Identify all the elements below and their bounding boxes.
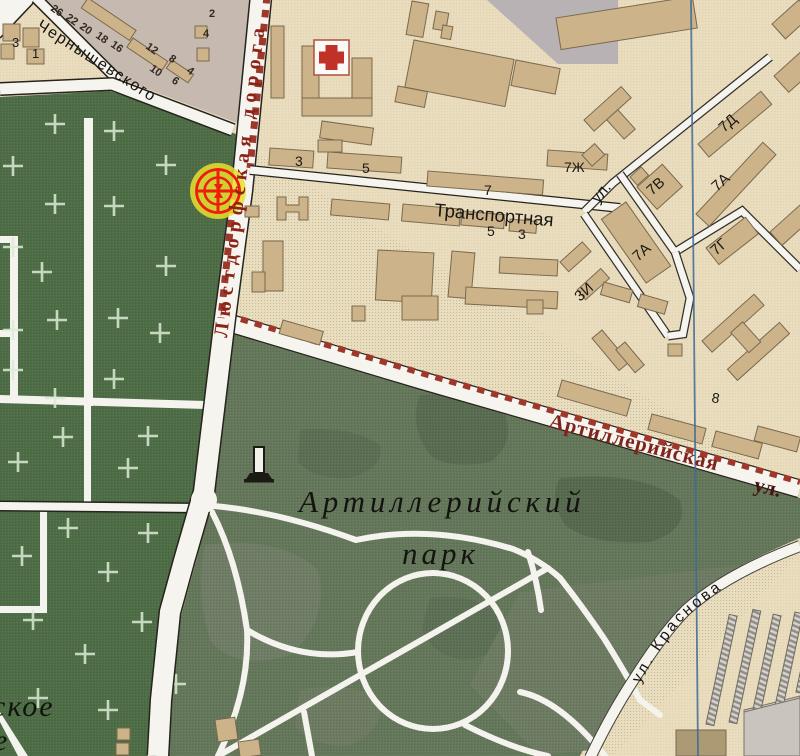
svg-text:ское: ское	[0, 690, 55, 723]
svg-text:4: 4	[203, 28, 210, 40]
svg-text:3: 3	[518, 226, 526, 242]
svg-text:7Ж: 7Ж	[564, 159, 585, 175]
svg-text:2: 2	[209, 8, 215, 20]
svg-text:5: 5	[487, 223, 495, 239]
svg-text:7: 7	[484, 182, 492, 198]
svg-text:е: е	[0, 724, 7, 756]
svg-text:Артиллерийский: Артиллерийский	[297, 484, 585, 519]
svg-text:5: 5	[362, 160, 370, 176]
svg-text:3: 3	[295, 153, 303, 169]
svg-text:1: 1	[32, 46, 39, 61]
svg-text:парк: парк	[402, 536, 479, 571]
svg-text:3: 3	[12, 35, 19, 50]
